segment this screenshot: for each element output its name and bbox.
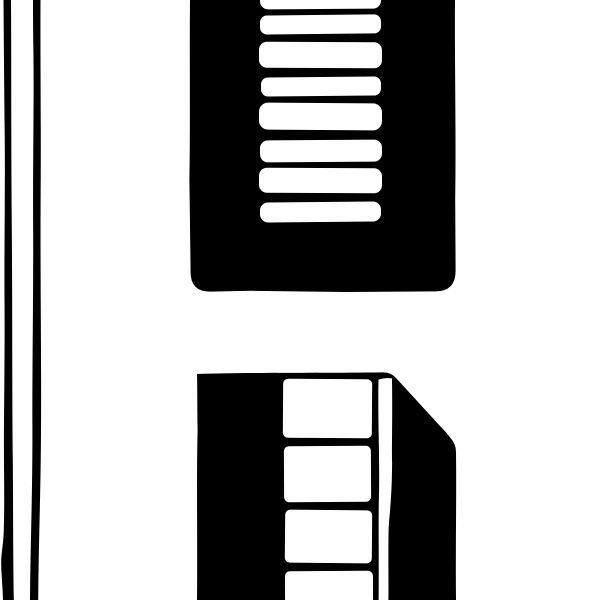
illustration-canvas [0,0,600,600]
louver-slat [259,168,382,194]
door-panel [284,446,371,502]
louver-slat [260,201,381,222]
louver-slat [260,0,381,9]
door-panel [285,571,373,600]
louver-slat [260,14,381,34]
louver-slat [260,140,382,163]
woodcut-illustration [0,0,600,600]
door-panel [285,510,372,564]
door-panel [283,379,372,439]
paneled-door-perspective [197,372,456,600]
louver-slat [259,42,382,69]
louvered-shutter-window [189,0,455,292]
louver-slat [259,103,382,131]
louver-slats [259,0,382,223]
louver-slat [261,76,381,96]
